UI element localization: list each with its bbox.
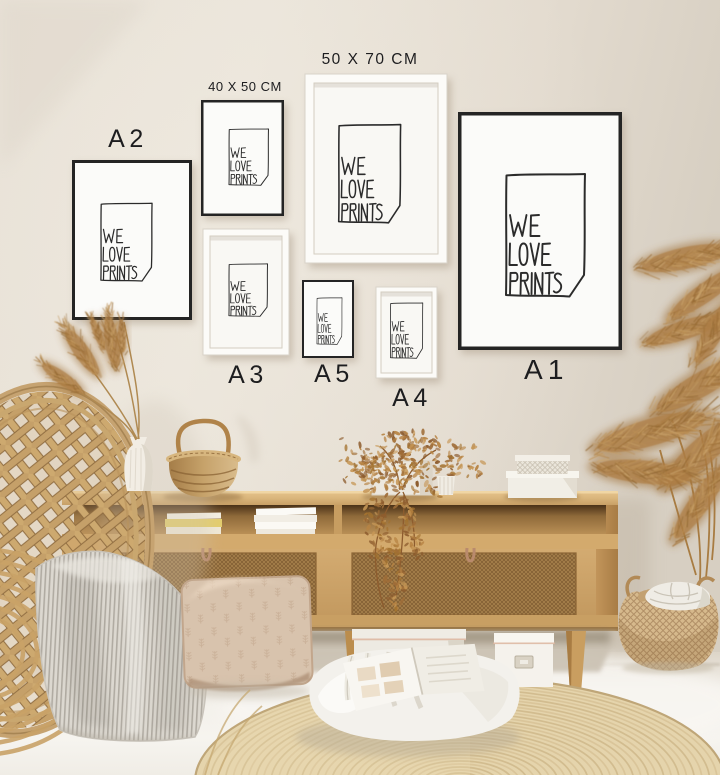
svg-text:40 X 50 CM: 40 X 50 CM (208, 79, 282, 94)
svg-text:A 5: A 5 (314, 360, 349, 388)
svg-text:50 X 70 CM: 50 X 70 CM (322, 51, 419, 68)
svg-text:A 3: A 3 (228, 361, 263, 389)
svg-text:A 4: A 4 (392, 384, 427, 412)
svg-text:A 2: A 2 (108, 125, 143, 153)
svg-text:A 1: A 1 (524, 354, 563, 385)
